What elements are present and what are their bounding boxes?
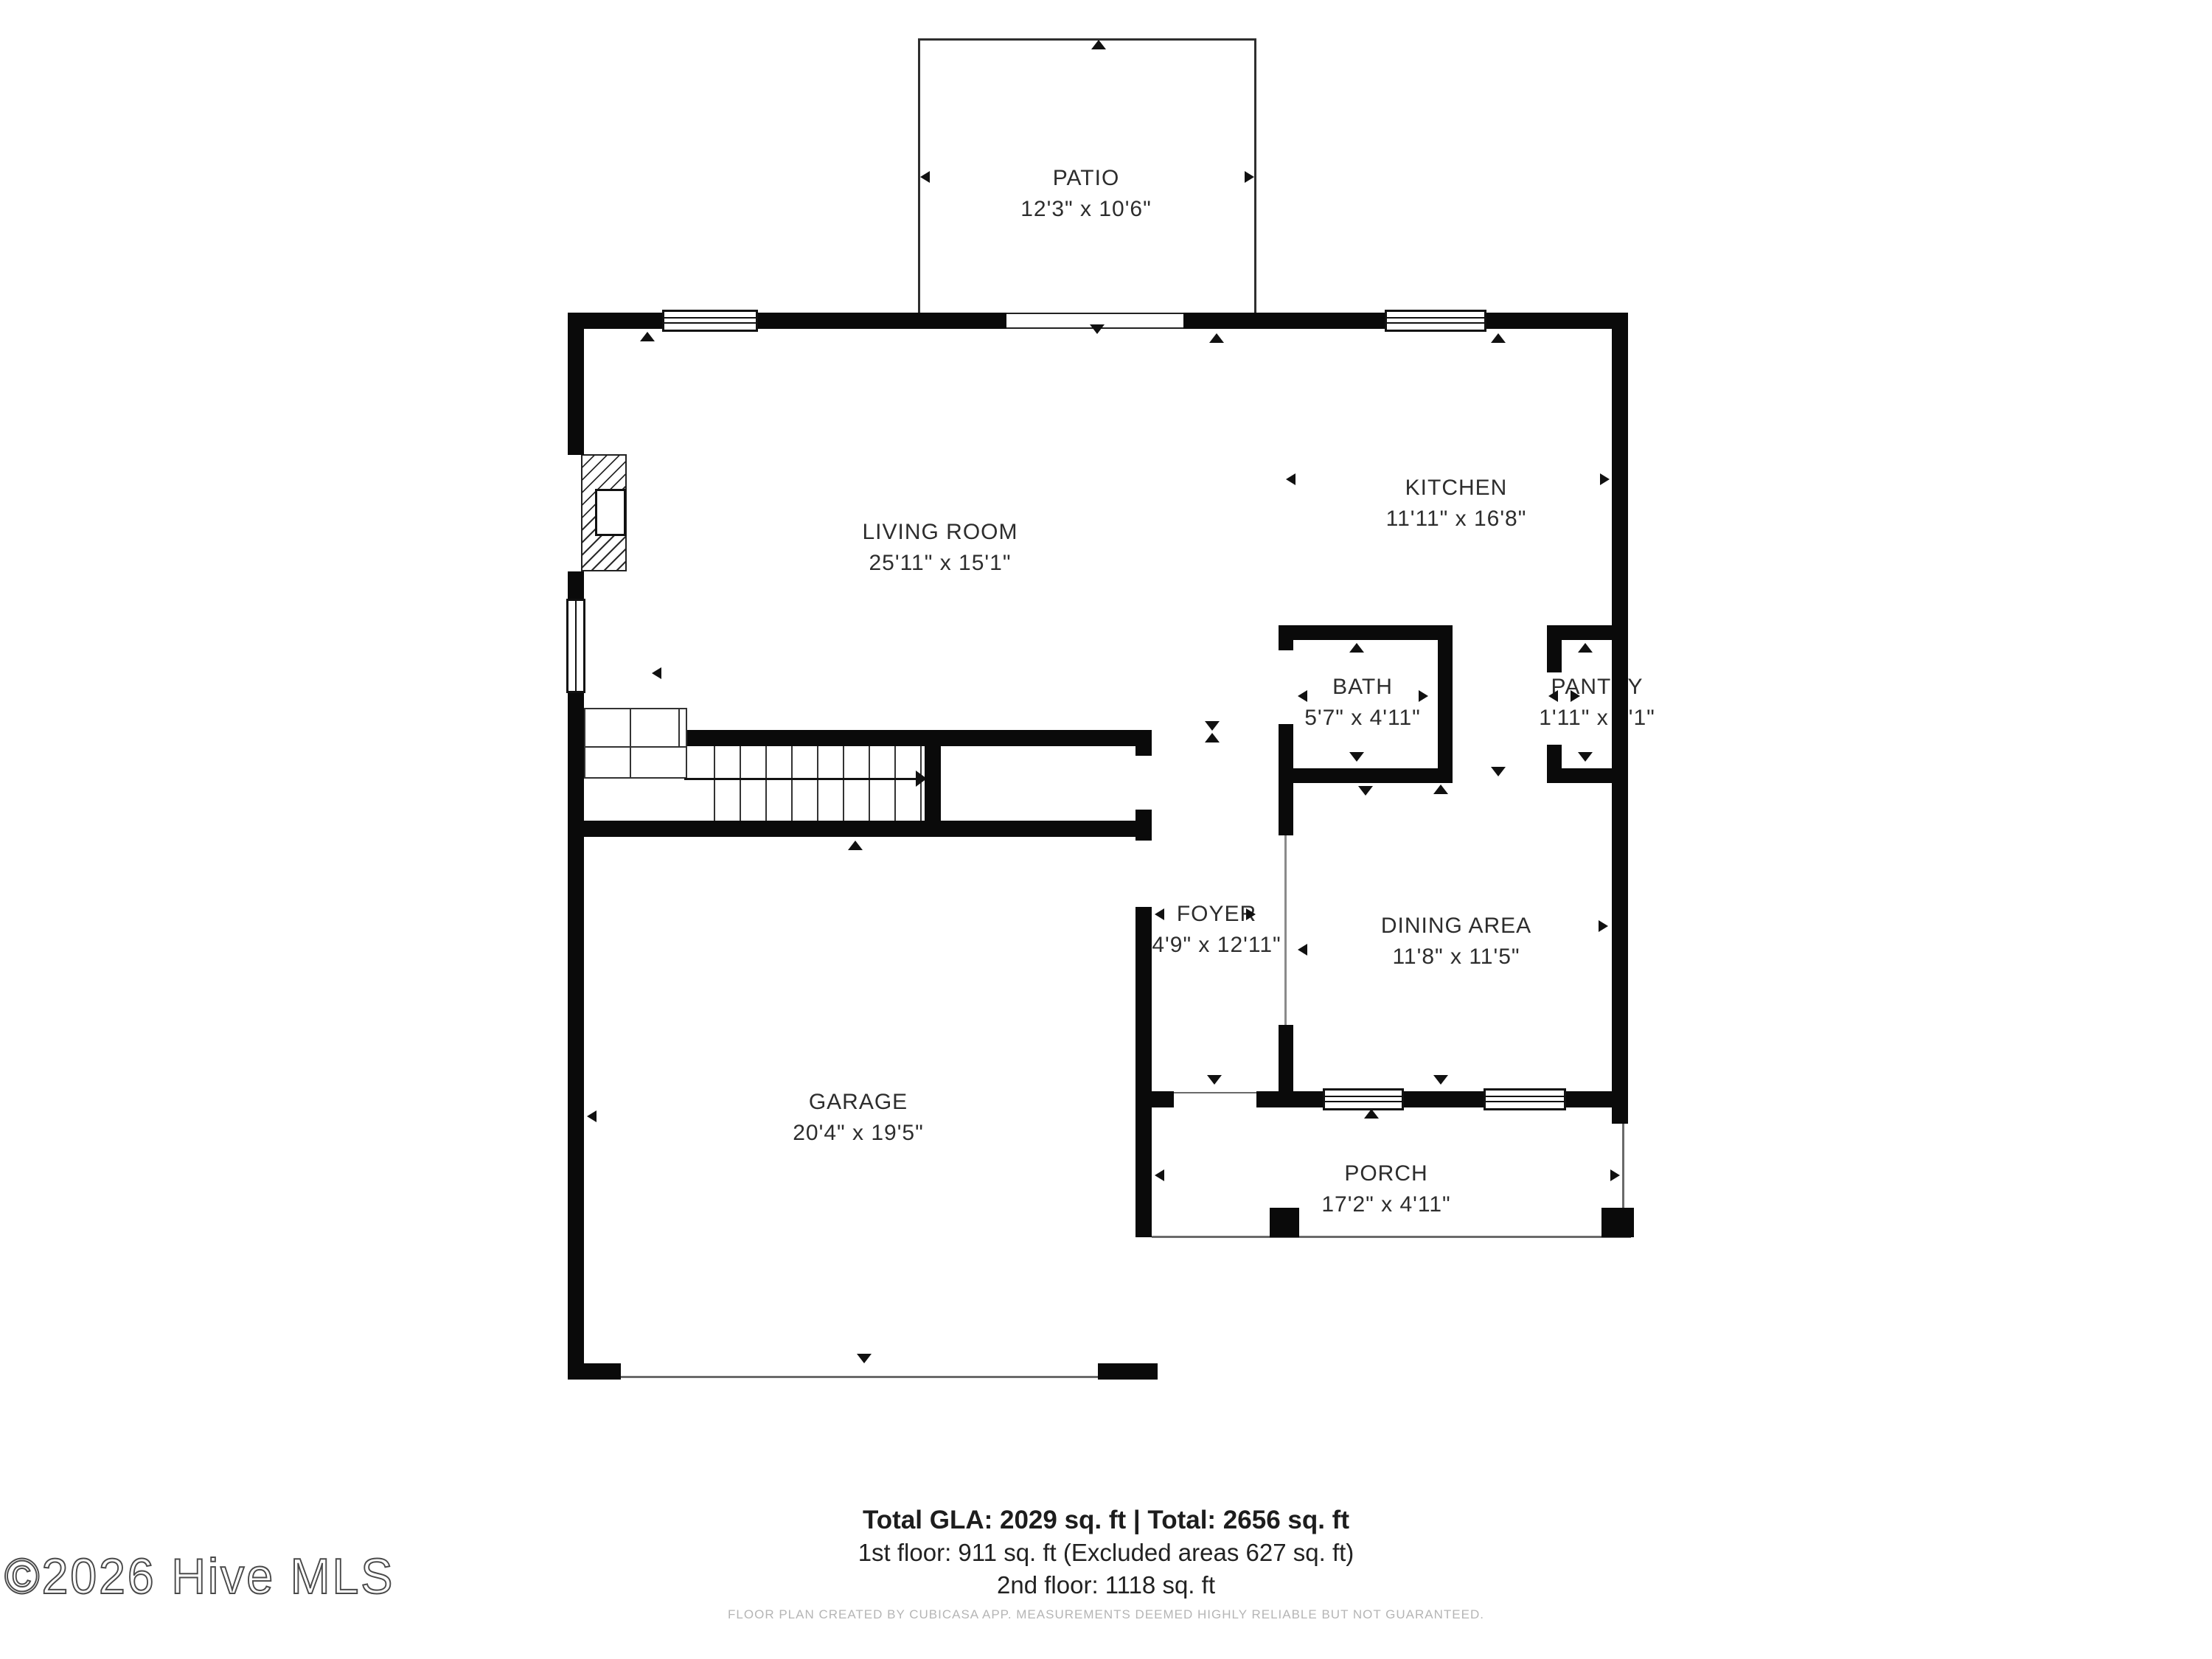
arrow-up-icon xyxy=(1364,1109,1379,1119)
room-dims: 5'7" x 4'11" xyxy=(1304,703,1421,734)
wall-bath-right xyxy=(1438,625,1453,783)
room-name: KITCHEN xyxy=(1386,473,1527,504)
wall-left xyxy=(568,571,584,599)
arrow-down-icon xyxy=(1349,752,1364,762)
room-label-patio: PATIO 12'3" x 10'6" xyxy=(1020,163,1152,225)
arrow-up-icon xyxy=(640,332,655,341)
arrow-down-icon xyxy=(1491,767,1506,776)
stair-landing xyxy=(584,708,687,779)
room-dims: 20'4" x 19'5" xyxy=(793,1118,924,1149)
room-label-bath: BATH 5'7" x 4'11" xyxy=(1304,672,1421,734)
stair-landing-divider xyxy=(585,746,686,748)
opening-marker-icon xyxy=(1205,721,1220,731)
room-name: PATIO xyxy=(1020,163,1152,194)
arrow-up-icon xyxy=(848,841,863,850)
arrow-right-icon xyxy=(1599,920,1608,932)
wall-right xyxy=(1612,313,1628,1124)
wall-top xyxy=(1486,313,1628,329)
room-name: GARAGE xyxy=(793,1087,924,1118)
room-name: LIVING ROOM xyxy=(862,517,1018,548)
wall-pantry-left xyxy=(1547,625,1562,672)
room-dims: 25'11" x 15'1" xyxy=(862,548,1018,579)
stair-tread xyxy=(843,746,844,821)
room-label-kitchen: KITCHEN 11'11" x 16'8" xyxy=(1386,473,1527,535)
foyer-dining-divider xyxy=(1284,835,1287,1025)
wall-foyer-east-stub xyxy=(1279,783,1293,835)
wall-left xyxy=(568,313,584,455)
mls-watermark: ©2026 Hive MLS xyxy=(4,1551,394,1601)
room-name: PORCH xyxy=(1321,1158,1450,1189)
arrow-left-icon xyxy=(1298,690,1307,702)
arrow-left-icon xyxy=(920,171,930,183)
stair-tread xyxy=(817,746,818,821)
room-name: DINING AREA xyxy=(1381,911,1531,942)
arrow-left-icon xyxy=(587,1110,597,1122)
arrow-right-icon xyxy=(1419,690,1428,702)
wall-stairwell-east xyxy=(925,746,941,821)
floor-plan-canvas: PATIO 12'3" x 10'6" LIVING ROOM 25'11" x… xyxy=(0,0,2212,1659)
arrow-right-icon xyxy=(1246,908,1256,920)
room-name: BATH xyxy=(1304,672,1421,703)
room-label-garage: GARAGE 20'4" x 19'5" xyxy=(793,1087,924,1149)
stair-tread xyxy=(714,746,715,821)
room-dims: 17'2" x 4'11" xyxy=(1321,1189,1450,1220)
room-dims: 4'9" x 12'11" xyxy=(1152,930,1281,961)
wall-foyer-west xyxy=(1135,810,1152,841)
wall-porch-west xyxy=(1135,1107,1152,1237)
wall-bath-left xyxy=(1279,625,1293,650)
stair-tread xyxy=(894,746,896,821)
porch-post xyxy=(1270,1208,1299,1237)
wall-foyer-west xyxy=(1135,907,1152,1107)
garage-door-sill xyxy=(621,1376,1098,1378)
room-label-dining-area: DINING AREA 11'8" x 11'5" xyxy=(1381,911,1531,973)
wall-bath-bottom xyxy=(1279,768,1453,783)
front-door-threshold xyxy=(1174,1092,1256,1093)
window xyxy=(1484,1088,1566,1110)
room-label-porch: PORCH 17'2" x 4'11" xyxy=(1321,1158,1450,1220)
wall-garage-corner xyxy=(1098,1363,1158,1380)
wall-bath-left xyxy=(1279,724,1293,768)
arrow-down-icon xyxy=(1207,1075,1222,1085)
room-label-pantry: PANTRY 1'11" x 4'1" xyxy=(1539,672,1655,734)
arrow-up-icon xyxy=(1349,643,1364,653)
arrow-down-icon xyxy=(1578,752,1593,762)
room-dims: 1'11" x 4'1" xyxy=(1539,703,1655,734)
arrow-up-icon xyxy=(1433,785,1448,794)
stair-landing-divider xyxy=(630,709,631,777)
room-name: FOYER xyxy=(1152,899,1281,930)
arrow-left-icon xyxy=(1286,473,1295,485)
stair-tread xyxy=(740,746,741,821)
porch-edge-bottom xyxy=(1152,1236,1631,1238)
stair-direction-line xyxy=(684,778,916,780)
arrow-left-icon xyxy=(1155,1169,1164,1181)
arrow-left-icon xyxy=(1298,944,1307,956)
room-dims: 11'8" x 11'5" xyxy=(1381,942,1531,973)
arrow-right-icon xyxy=(1600,473,1610,485)
stair-landing-divider xyxy=(678,709,680,748)
wall-front xyxy=(1404,1091,1484,1107)
wall-left xyxy=(568,693,584,1363)
arrow-down-icon xyxy=(857,1354,872,1363)
arrow-right-icon xyxy=(1245,171,1254,183)
arrow-up-icon xyxy=(1578,643,1593,653)
arrow-up-icon xyxy=(1491,333,1506,343)
room-label-living-room: LIVING ROOM 25'11" x 15'1" xyxy=(862,517,1018,579)
room-dims: 11'11" x 16'8" xyxy=(1386,504,1527,535)
arrow-up-icon xyxy=(1091,40,1106,49)
room-dims: 12'3" x 10'6" xyxy=(1020,194,1152,225)
wall-foyer-west xyxy=(1135,730,1152,756)
arrow-left-icon xyxy=(652,667,661,679)
arrow-right-icon xyxy=(1571,690,1580,702)
stair-tread xyxy=(869,746,870,821)
arrow-down-icon xyxy=(1090,324,1105,334)
wall-bath-top xyxy=(1279,625,1453,640)
arrow-left-icon xyxy=(1548,690,1558,702)
wall-garage-corner xyxy=(568,1363,621,1380)
arrow-down-icon xyxy=(1433,1075,1448,1085)
window xyxy=(566,599,585,693)
total-area-line: Total GLA: 2029 sq. ft | Total: 2656 sq.… xyxy=(0,1504,2212,1537)
firebox xyxy=(595,489,626,536)
window xyxy=(1385,310,1486,332)
wall-top xyxy=(758,313,1006,329)
wall-front-door-stub xyxy=(1279,1025,1293,1107)
opening-marker-icon xyxy=(1205,733,1220,742)
arrow-up-icon xyxy=(1209,333,1224,343)
wall-top xyxy=(1183,313,1386,329)
window xyxy=(1323,1088,1404,1110)
wall-pantry-left xyxy=(1547,745,1562,783)
stair-tread xyxy=(765,746,767,821)
arrow-down-icon xyxy=(1358,786,1373,796)
disclaimer-text: FLOOR PLAN CREATED BY CUBICASA APP. MEAS… xyxy=(0,1604,2212,1625)
stair-tread xyxy=(791,746,793,821)
wall-stairs-top xyxy=(687,730,1152,746)
window xyxy=(662,310,758,332)
arrow-left-icon xyxy=(1155,908,1164,920)
wall-garage-north xyxy=(568,821,1152,837)
room-label-foyer: FOYER 4'9" x 12'11" xyxy=(1152,899,1281,961)
wall-front xyxy=(1566,1091,1628,1107)
porch-post xyxy=(1601,1208,1634,1237)
arrow-right-icon xyxy=(1610,1169,1620,1181)
